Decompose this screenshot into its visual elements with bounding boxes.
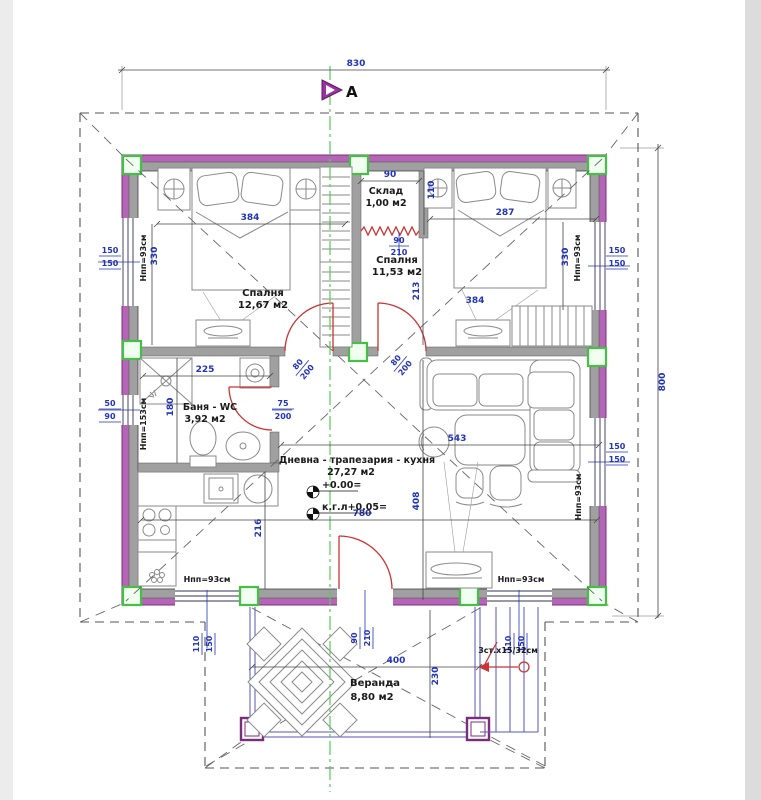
toilet — [190, 421, 216, 467]
storage-area: 1,00 м2 — [365, 198, 406, 209]
dim-living-408: 408 — [412, 492, 422, 511]
dim-b2-213: 213 — [412, 282, 422, 301]
svg-text:+0.00=: +0.00= — [322, 480, 361, 491]
svg-text:90: 90 — [350, 632, 359, 644]
svg-text:150: 150 — [609, 442, 626, 451]
wardrobe-bedroom1 — [320, 167, 352, 347]
svg-text:75: 75 — [277, 399, 289, 408]
svg-text:90: 90 — [393, 236, 405, 245]
dim-b2-384: 384 — [466, 296, 485, 306]
section-label: A — [346, 83, 358, 101]
sink — [226, 432, 260, 460]
sill-living-bottom-label: Нпп=93см — [498, 575, 545, 584]
bedroom1-area: 12,67 м2 — [238, 300, 288, 311]
armchair — [419, 427, 449, 457]
dim-b2-287: 287 — [496, 208, 515, 218]
scan-edge-left — [0, 0, 13, 800]
svg-text:110: 110 — [192, 635, 201, 652]
section-marker: A — [322, 80, 358, 101]
wardrobe-bedroom2 — [512, 306, 592, 346]
bedroom2-name: Спалня — [376, 255, 418, 266]
pouf — [456, 468, 483, 498]
dim-overall-height: 800 — [612, 144, 668, 619]
sill-living-right-label: Нпп=93см — [574, 474, 583, 521]
tv-dresser — [196, 320, 250, 346]
svg-text:150: 150 — [609, 455, 626, 464]
dim-bed1-label: 384 — [241, 213, 260, 223]
dim-bath-225: 225 — [196, 365, 215, 375]
bedroom2-area: 11,53 м2 — [372, 267, 422, 278]
svg-text:150: 150 — [102, 259, 119, 268]
sill-kitchen-label: Нпп=93см — [184, 575, 231, 584]
svg-text:150: 150 — [205, 635, 214, 652]
dim-veranda-230: 230 — [431, 667, 441, 686]
dim-b2-330: 330 — [561, 248, 571, 267]
svg-text:150: 150 — [102, 246, 119, 255]
dim-kitchen-216: 216 — [254, 519, 264, 538]
bathroom-area: 3,92 м2 — [184, 414, 225, 425]
dim-living-543: 543 — [448, 434, 467, 444]
washing-machine — [240, 358, 270, 388]
svg-text:к.г.л+0.05=: к.г.л+0.05= — [322, 502, 387, 513]
storage-name: Склад — [369, 186, 404, 197]
window-kitchen — [175, 588, 240, 607]
bathroom-name: Баня - WC — [183, 402, 237, 413]
veranda-area: 8,80 м2 — [350, 692, 393, 703]
veranda-table — [247, 627, 357, 737]
floor-plan-drawing: A 830 800 384 330 Нпп=93см 90 110 90 210… — [0, 0, 761, 800]
dim-b1-330: 330 — [150, 247, 160, 266]
dim-storage-w: 90 — [384, 170, 397, 180]
svg-text:90: 90 — [104, 412, 116, 421]
living-area: 27,27 м2 — [327, 467, 375, 478]
sill-b1-label: Нпп=93см — [139, 235, 148, 282]
scan-edge-right — [745, 0, 761, 800]
svg-text:50: 50 — [104, 399, 116, 408]
dim-storage-h: 110 — [427, 181, 437, 200]
dim-overall-width: 830 — [118, 59, 610, 110]
round-basin — [244, 475, 272, 503]
dim-830-label: 830 — [347, 59, 366, 69]
svg-text:210: 210 — [363, 629, 372, 646]
bedroom1-name: Спалня — [242, 288, 284, 299]
window-living-bottom — [487, 588, 552, 607]
tv-dresser — [456, 320, 510, 346]
dim-bath-180: 180 — [166, 398, 176, 417]
stairs-note-label: 3ст.х15/32см — [478, 646, 538, 655]
dim-800-label: 800 — [658, 373, 668, 392]
sill-b2-label: Нпп=93см — [573, 235, 582, 282]
pouf — [490, 466, 521, 500]
living-name: Дневна - трапезария - кухня — [279, 455, 435, 466]
svg-text:200: 200 — [275, 412, 292, 421]
sill-bath-label: Нпп=153см — [139, 398, 148, 450]
svg-text:150: 150 — [609, 246, 626, 255]
svg-text:150: 150 — [609, 259, 626, 268]
dim-veranda-400: 400 — [387, 656, 406, 666]
veranda-name: Веранда — [350, 678, 400, 689]
floor-plan-page: A 830 800 384 330 Нпп=93см 90 110 90 210… — [0, 0, 761, 800]
